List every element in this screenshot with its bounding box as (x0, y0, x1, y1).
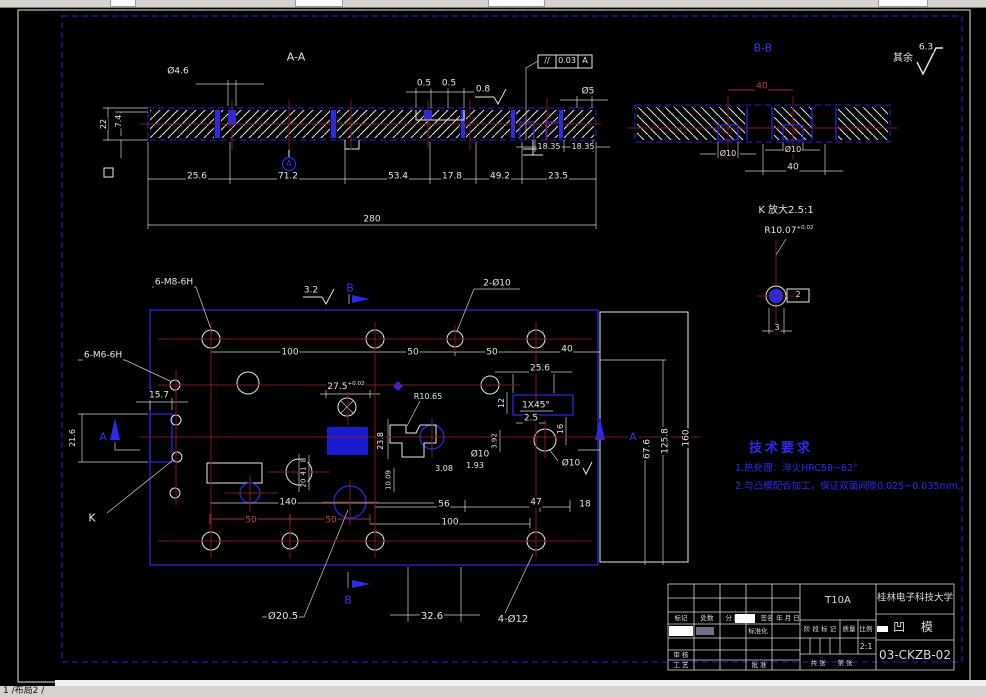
tb-drawing-no: 03-CKZB-02 (879, 649, 951, 661)
layout-tabs[interactable]: 1 /布局2 / (0, 686, 44, 696)
tb-label-sign: 签名 (761, 615, 774, 622)
status-bar: 1 /布局2 / (0, 686, 986, 697)
section-b-b (628, 48, 943, 175)
toolbar-button[interactable] (295, 0, 343, 7)
toolbar-button[interactable] (110, 0, 136, 7)
tb-label-weight: 质量 (843, 626, 856, 633)
tb-scale-value: 2:1 (860, 643, 873, 651)
tb-label-standard: 标准化 (748, 628, 768, 635)
section-a-a (103, 55, 610, 229)
toolbar-button[interactable] (878, 0, 928, 7)
tb-label-page: 第 张 (837, 660, 852, 667)
tech-req-title: 技术要求 (749, 437, 961, 456)
tech-req-line-2: 2.与凸模配合加工，保证双面间隙0.025~0.035mm. (735, 478, 961, 492)
tb-label-check: 审 核 (673, 652, 688, 659)
highlight-cell (735, 614, 755, 623)
tb-label-scale: 比例 (860, 626, 873, 633)
tb-label-mark: 标记 (675, 615, 688, 622)
tb-label-count: 处数 (701, 615, 714, 622)
tb-material: T10A (825, 596, 851, 606)
tech-req-line-1: 1.热处理：淬火HRC58~62° (735, 460, 961, 474)
detail-k (757, 239, 809, 335)
toolbar-strip[interactable] (0, 0, 986, 8)
tb-label-process: 工 艺 (673, 662, 688, 669)
technical-requirements: 技术要求 1.热处理：淬火HRC58~62° 2.与凸模配合加工，保证双面间隙0… (735, 437, 961, 492)
signature-smudge (696, 627, 714, 635)
tb-part-name: 凹 模 (893, 621, 939, 633)
tb-school: 桂林电子科技大学 (877, 593, 953, 603)
highlight-cell (877, 626, 888, 632)
plan-view (78, 287, 700, 622)
tb-label-date: 年 月 日 (776, 615, 800, 622)
tb-label-stage: 阶 段 标 记 (804, 626, 836, 633)
highlight-cell (669, 626, 693, 636)
app-window: .sw{stroke:#e6e6e6;fill:none;stroke-widt… (0, 0, 986, 697)
tb-label-sheet: 共 张 (810, 660, 825, 667)
title-block: 标记 处数 分 区 签名 年 月 日 标准化 审 核 工 艺 批 准 阶 段 标… (668, 584, 954, 670)
toolbar-button[interactable] (488, 0, 545, 7)
tb-label-approve: 批 准 (751, 662, 766, 669)
